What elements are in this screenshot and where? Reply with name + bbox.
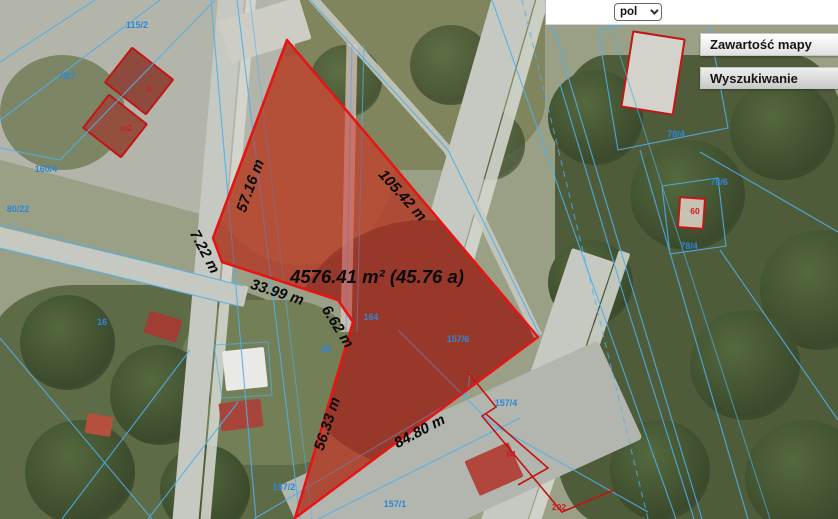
panel-map-contents[interactable]: Zawartość mapy bbox=[700, 33, 838, 56]
panel-map-contents-label: Zawartość mapy bbox=[710, 37, 812, 52]
area-label: 4576.41 m² (45.76 a) bbox=[289, 266, 464, 287]
parcel-number-label: 115/2 bbox=[126, 20, 148, 30]
panel-search-label: Wyszukiwanie bbox=[710, 71, 798, 86]
building-outlines bbox=[467, 371, 614, 512]
parcel-number-label: 157/4 bbox=[495, 398, 518, 408]
parcel-number-label: 164 bbox=[363, 312, 378, 322]
chevron-down-icon bbox=[650, 6, 658, 14]
parcel-number-label: 78/6 bbox=[710, 177, 728, 187]
parcel-number-label: 157/1 bbox=[384, 499, 407, 509]
parcel-number-label: 160/4 bbox=[35, 164, 58, 174]
map-viewport[interactable]: 57.16 m 7.22 m 33.99 m 6.62 m 56.33 m 84… bbox=[0, 0, 838, 519]
building-number-label: 84 bbox=[506, 449, 516, 459]
parcel-number-label: 78/4 bbox=[680, 241, 698, 251]
language-select-value: pol bbox=[620, 6, 637, 18]
top-toolbar: pol bbox=[545, 0, 838, 25]
panel-search[interactable]: Wyszukiwanie bbox=[700, 67, 838, 89]
parcel-number-label: 157/2 bbox=[273, 482, 296, 492]
parcel-number-label: 78/4 bbox=[667, 129, 685, 139]
parcel-number-label: 46 bbox=[321, 344, 331, 354]
parcel-number-label: 157/6 bbox=[447, 334, 470, 344]
parcel-number-label: 16 bbox=[97, 317, 107, 327]
parcel-number-label: 78/7 bbox=[58, 71, 76, 81]
building-number-label: m2 bbox=[120, 123, 133, 133]
building-number-label: 8 bbox=[147, 84, 152, 94]
building-number-label: 202 bbox=[552, 502, 566, 512]
building-number-label: 60 bbox=[690, 206, 700, 216]
language-select[interactable]: pol bbox=[614, 3, 662, 21]
parcel-number-label: 80/22 bbox=[7, 204, 30, 214]
